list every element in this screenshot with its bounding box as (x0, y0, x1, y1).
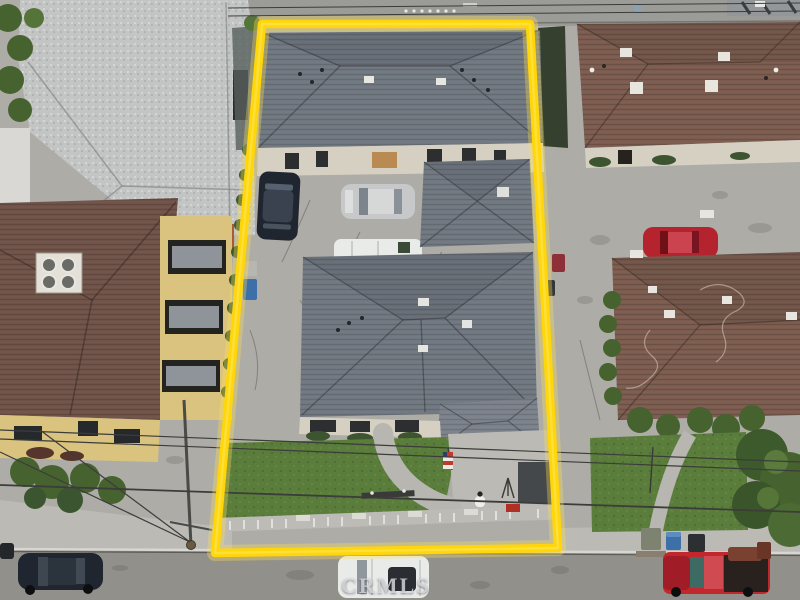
silver-sedan (341, 184, 415, 219)
crmls-watermark: CRMLS (341, 573, 430, 599)
main-house-windows (310, 420, 419, 432)
van-cargo (398, 242, 410, 253)
dark-car (256, 171, 301, 241)
aerial-photo: CRMLS (0, 0, 800, 600)
side-path (0, 128, 30, 208)
rooftop-vent (755, 1, 765, 7)
north-house-door (618, 150, 632, 164)
parked-car-partial (0, 543, 14, 559)
apartment-chimney (36, 253, 82, 293)
detached-garage (420, 159, 534, 247)
rear-house (257, 30, 544, 176)
neighbor-house-south (590, 210, 800, 547)
sofa-in-bed (728, 547, 762, 561)
neighbor-house-north (577, 22, 800, 168)
chair-in-bed (757, 542, 771, 559)
red-cooler (506, 504, 520, 512)
red-car (643, 227, 718, 258)
balconies (162, 240, 226, 392)
aerial-photo-canvas (0, 0, 800, 600)
garage-skylight (497, 187, 509, 197)
wood-plank (636, 551, 666, 557)
wood-crate (372, 152, 397, 168)
